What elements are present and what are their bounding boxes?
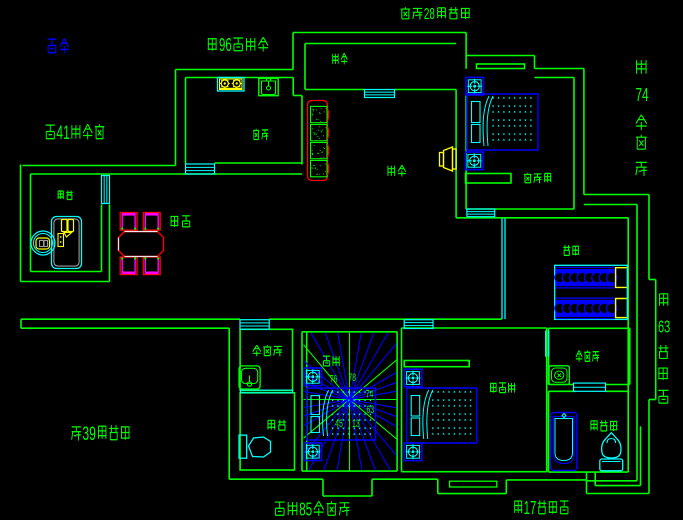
- svg-text:28: 28: [424, 6, 435, 23]
- svg-text:45: 45: [335, 418, 343, 430]
- svg-text:17: 17: [524, 497, 537, 518]
- svg-text:78: 78: [348, 372, 356, 384]
- svg-text:41: 41: [56, 122, 70, 144]
- svg-text:74: 74: [366, 389, 374, 401]
- svg-text:63: 63: [366, 404, 374, 416]
- svg-text:74: 74: [636, 85, 649, 106]
- svg-text:96: 96: [219, 34, 232, 55]
- svg-text:85: 85: [299, 499, 312, 520]
- svg-text:63: 63: [658, 316, 670, 336]
- svg-text:76: 76: [330, 373, 338, 385]
- svg-text:39: 39: [82, 423, 96, 445]
- svg-text:13: 13: [352, 418, 360, 430]
